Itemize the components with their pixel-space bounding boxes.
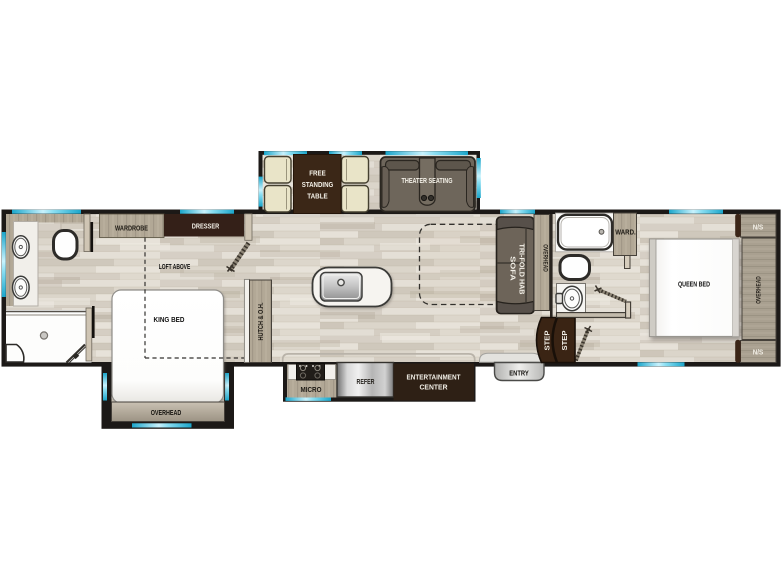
svg-text:FREE: FREE: [309, 169, 326, 178]
svg-text:OVERHEAD: OVERHEAD: [756, 276, 763, 304]
svg-text:N/S: N/S: [753, 350, 764, 357]
svg-text:QUEEN BED: QUEEN BED: [678, 280, 710, 289]
svg-text:STANDING: STANDING: [302, 180, 334, 189]
svg-text:WARD.: WARD.: [615, 230, 636, 237]
svg-text:REFER: REFER: [357, 377, 375, 386]
svg-text:ENTERTAINMENT: ENTERTAINMENT: [407, 373, 461, 382]
svg-text:ENTRY: ENTRY: [509, 369, 529, 378]
svg-text:SOFA: SOFA: [509, 256, 516, 281]
svg-text:OVERHEAD: OVERHEAD: [542, 244, 549, 272]
svg-text:HUTCH & O.H.: HUTCH & O.H.: [256, 303, 265, 341]
svg-text:STEP: STEP: [562, 330, 569, 350]
svg-text:DRESSER: DRESSER: [192, 222, 220, 231]
svg-text:MICRO: MICRO: [301, 385, 322, 394]
svg-text:CENTER: CENTER: [420, 383, 449, 392]
svg-text:WARDROBE: WARDROBE: [115, 224, 148, 233]
svg-text:TABLE: TABLE: [307, 192, 328, 201]
svg-text:STEP: STEP: [545, 330, 552, 350]
svg-text:OVERHEAD: OVERHEAD: [151, 408, 182, 417]
svg-text:TRI-FOLD HAB: TRI-FOLD HAB: [518, 244, 525, 295]
svg-text:THEATER SEATING: THEATER SEATING: [402, 176, 453, 185]
svg-text:LOFT ABOVE: LOFT ABOVE: [159, 264, 191, 271]
svg-text:KING BED: KING BED: [154, 315, 185, 324]
svg-text:N/S: N/S: [753, 225, 764, 232]
